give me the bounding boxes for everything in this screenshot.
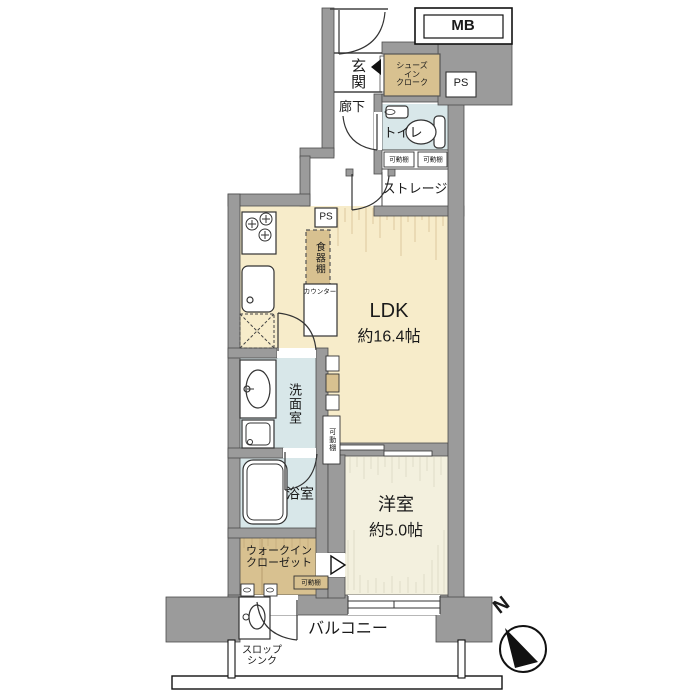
slop-sink-line2: シンク	[242, 657, 282, 668]
washroom-door-opening	[277, 348, 316, 358]
hall-floor	[310, 156, 374, 208]
movable-shelf-label: 可動棚	[423, 156, 443, 163]
entrance-label: 玄関	[349, 58, 365, 90]
balcony-pillar-left	[166, 597, 240, 642]
balcony-rails	[172, 640, 502, 689]
bathroom-label: 浴室	[286, 486, 314, 501]
floor-plan: 玄関 シューズ イン クローク MB PS 廊下 トイレ 可動棚 可動棚 ストレ…	[0, 0, 700, 700]
movable-shelf-label: 可動棚	[328, 428, 336, 452]
shoe-closet-line3: クローク	[396, 79, 428, 88]
balcony-label: バルコニー	[308, 620, 388, 637]
walk-in-closet-label: ウォークイン クローゼット	[246, 546, 312, 570]
balcony-rail-bottom	[172, 676, 502, 689]
shoe-closet-label: シューズ イン クローク	[396, 62, 428, 88]
wall-niche-box	[326, 374, 339, 392]
cupboard-label: 食器棚	[313, 242, 324, 275]
ldk-floor	[328, 206, 448, 444]
balcony-rail-right	[458, 640, 465, 678]
kitchen-sink-icon	[242, 266, 274, 312]
storage-label: ストレージ	[383, 182, 448, 196]
wall	[228, 448, 283, 458]
sliding-door-panel	[336, 445, 384, 450]
ldk-label: LDK	[370, 301, 409, 323]
compass-icon	[500, 626, 546, 672]
wall	[228, 348, 277, 358]
ps-label-kitchen: PS	[319, 213, 332, 224]
front-door-zone	[334, 8, 386, 54]
wall	[328, 455, 345, 553]
movable-shelf-label: 可動棚	[389, 156, 409, 163]
washroom-label: 洗面室	[287, 383, 301, 425]
bathtub-icon	[243, 460, 287, 524]
balcony-rail-left	[228, 640, 235, 678]
small-fixture-box	[264, 584, 277, 596]
toilet-label: トイレ	[383, 126, 422, 140]
walk-in-closet-line2: クローゼット	[246, 558, 312, 570]
wall-niche-box	[326, 395, 339, 410]
sliding-door-panel	[384, 451, 432, 456]
wall	[228, 528, 316, 538]
wall	[322, 8, 334, 156]
slop-sink-label: スロップ シンク	[242, 646, 282, 668]
small-fixture-box	[241, 584, 254, 596]
wall-right-outer	[448, 94, 464, 615]
bedroom-area-label: 約5.0帖	[369, 522, 423, 539]
wall-left-outer	[228, 194, 240, 615]
bedroom-label: 洋室	[378, 495, 414, 514]
corridor-label: 廊下	[339, 100, 365, 114]
ps-label-top: PS	[454, 78, 469, 90]
toilet-door-opening	[374, 112, 382, 150]
mb-label: MB	[451, 18, 474, 34]
ldk-area-label: 約16.4帖	[357, 328, 420, 345]
bathroom-door-opening	[283, 448, 316, 458]
counter-label: カウンター	[304, 288, 337, 295]
toilet-tank-icon	[386, 106, 408, 118]
wall	[328, 577, 345, 598]
wall-niche-box	[326, 356, 339, 371]
balcony-pillar-right	[436, 597, 492, 642]
movable-shelf-label: 可動棚	[301, 579, 321, 586]
wall-door-jamb	[388, 169, 395, 176]
